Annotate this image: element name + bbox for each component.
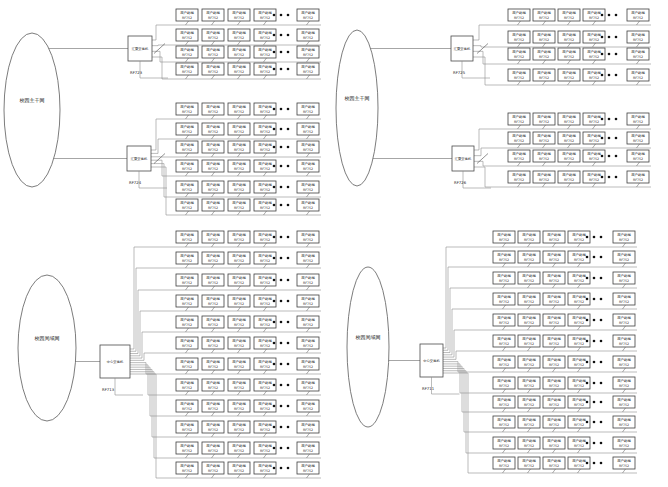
ellipsis-dot xyxy=(280,165,283,168)
ellipsis-dot xyxy=(280,34,283,37)
terminal-box-label-line1: 用户终端 xyxy=(631,173,645,177)
terminal-box-label-line2: RF752 xyxy=(619,444,629,448)
terminal-box-label-line2: RF752 xyxy=(303,281,313,285)
terminal-box-label-line1: 用户终端 xyxy=(587,50,601,54)
terminal-box-label-line2: RF752 xyxy=(303,323,313,327)
terminal-box-label-line2: RF752 xyxy=(589,178,599,182)
ellipsis-dot xyxy=(593,361,596,364)
terminal-box-label-line2: RF752 xyxy=(499,300,509,304)
diagram-svg: 用户终端RF752用户终端RF752用户终端RF752用户终端RF752用户终端… xyxy=(0,0,668,487)
ellipsis-dot xyxy=(601,36,604,39)
terminal-box-label-line2: RF752 xyxy=(234,365,244,369)
terminal-box-label-line1: 用户终端 xyxy=(301,360,315,364)
terminal-box-label-line1: 用户终端 xyxy=(206,125,220,129)
terminal-box-label-line1: 用户终端 xyxy=(258,143,272,147)
ellipsis-dot xyxy=(273,363,276,366)
terminal-box-label-line1: 用户终端 xyxy=(180,381,194,385)
ellipsis-dot xyxy=(287,467,290,470)
terminal-box-label-line2: RF752 xyxy=(564,76,574,80)
ellipsis-dot xyxy=(601,53,604,56)
terminal-box-label-line1: 用户终端 xyxy=(232,201,246,205)
terminal-box-label-line1: 用户终端 xyxy=(522,418,536,422)
terminal-box-label-line2: RF752 xyxy=(499,342,509,346)
ellipsis-dot xyxy=(586,340,589,343)
terminal-box-label-line1: 用户终端 xyxy=(497,233,511,237)
terminal-box-label-line1: 用户终端 xyxy=(206,183,220,187)
terminal-box-label-line2: RF752 xyxy=(208,238,218,242)
ellipsis-dot xyxy=(287,384,290,387)
ellipsis-dot xyxy=(287,300,290,303)
terminal-box-label-line2: RF752 xyxy=(539,157,549,161)
terminal-box-label-line2: RF752 xyxy=(182,449,192,453)
terminal-box-label-line1: 用户终端 xyxy=(232,143,246,147)
terminal-box-label-line2: RF752 xyxy=(564,139,574,143)
switch-sublabel: RF723 xyxy=(130,70,143,75)
terminal-box-label-line2: RF752 xyxy=(499,444,509,448)
terminal-box-label-line1: 用户终端 xyxy=(258,125,272,129)
terminal-box-label-line2: RF752 xyxy=(208,449,218,453)
terminal-box-label-line2: RF752 xyxy=(208,130,218,134)
terminal-box-label-line1: 用户终端 xyxy=(180,183,194,187)
terminal-box-label-line1: 用户终端 xyxy=(232,276,246,280)
terminal-box-label-line1: 用户终端 xyxy=(547,439,561,443)
terminal-box-label-line1: 用户终端 xyxy=(206,444,220,448)
terminal-box-label-line2: RF752 xyxy=(574,403,584,407)
terminal-box-label-line2: RF752 xyxy=(619,342,629,346)
terminal-box-label-line1: 用户终端 xyxy=(562,173,576,177)
terminal-box-label-line1: 用户终端 xyxy=(180,297,194,301)
terminal-box-label-line2: RF752 xyxy=(303,188,313,192)
ellipsis-dot xyxy=(280,51,283,54)
terminal-box-label-line2: RF752 xyxy=(633,139,643,143)
terminal-box-label-line2: RF752 xyxy=(524,403,534,407)
terminal-box-label-line1: 用户终端 xyxy=(232,162,246,166)
terminal-box-label-line1: 用户终端 xyxy=(497,316,511,320)
terminal-box-label-line1: 用户终端 xyxy=(301,444,315,448)
terminal-box-label-line2: RF752 xyxy=(234,188,244,192)
terminal-box-label-line1: 用户终端 xyxy=(206,105,220,109)
ellipsis-dot xyxy=(601,137,604,140)
terminal-box-label-line1: 用户终端 xyxy=(572,295,586,299)
terminal-box-label-line2: RF752 xyxy=(524,423,534,427)
ellipsis-dot xyxy=(593,277,596,280)
terminal-box-label-line1: 用户终端 xyxy=(587,134,601,138)
terminal-box-label-line2: RF752 xyxy=(234,167,244,171)
terminal-box-label-line1: 用户终端 xyxy=(631,71,645,75)
terminal-box-label-line2: RF752 xyxy=(574,384,584,388)
terminal-box-label-line1: 用户终端 xyxy=(206,201,220,205)
terminal-box-label-line2: RF752 xyxy=(303,130,313,134)
terminal-box-label-line1: 用户终端 xyxy=(258,423,272,427)
ellipsis-dot xyxy=(601,14,604,17)
terminal-box-label-line2: RF752 xyxy=(182,110,192,114)
terminal-box-label-line2: RF752 xyxy=(514,157,524,161)
terminal-box-label-line1: 用户终端 xyxy=(301,339,315,343)
terminal-box-label-line2: RF752 xyxy=(234,344,244,348)
terminal-box-label-line1: 用户终端 xyxy=(547,358,561,362)
ellipsis-dot xyxy=(287,447,290,450)
terminal-box-label-line1: 用户终端 xyxy=(180,143,194,147)
terminal-box-label-line1: 用户终端 xyxy=(572,253,586,257)
terminal-box-label-line1: 用户终端 xyxy=(587,33,601,37)
ellipsis-dot xyxy=(273,128,276,131)
terminal-box-label-line2: RF752 xyxy=(549,300,559,304)
terminal-box-label-line1: 用户终端 xyxy=(232,48,246,52)
terminal-box-label-line1: 用户终端 xyxy=(301,423,315,427)
terminal-box-label-line2: RF752 xyxy=(589,120,599,124)
ellipsis-dot xyxy=(586,361,589,364)
terminal-box-label-line1: 用户终端 xyxy=(572,418,586,422)
terminal-box-label-line2: RF752 xyxy=(303,53,313,57)
terminal-box-label-line2: RF752 xyxy=(619,423,629,427)
terminal-box-label-line2: RF752 xyxy=(303,302,313,306)
terminal-box-label-line2: RF752 xyxy=(549,444,559,448)
terminal-box-label-line1: 用户终端 xyxy=(180,125,194,129)
ellipsis-dot xyxy=(273,165,276,168)
terminal-box-label-line2: RF752 xyxy=(564,16,574,20)
terminal-box-label-line1: 用户终端 xyxy=(232,444,246,448)
switch-label: 中心交换机 xyxy=(423,358,440,363)
ellipsis-dot xyxy=(601,74,604,77)
terminal-box-label-line2: RF752 xyxy=(574,464,584,468)
terminal-box-label-line2: RF752 xyxy=(234,53,244,57)
terminal-box-label-line2: RF752 xyxy=(514,120,524,124)
terminal-box-label-line2: RF752 xyxy=(303,428,313,432)
terminal-box-label-line1: 用户终端 xyxy=(258,276,272,280)
terminal-box-label-line2: RF752 xyxy=(208,407,218,411)
ellipsis-dot xyxy=(280,405,283,408)
ellipsis-dot xyxy=(273,108,276,111)
terminal-box-label-line2: RF752 xyxy=(260,238,270,242)
terminal-box-label-line2: RF752 xyxy=(514,178,524,182)
ellipsis-dot xyxy=(280,447,283,450)
ellipsis-dot xyxy=(593,382,596,385)
ellipsis-dot xyxy=(615,155,618,158)
ellipsis-dot xyxy=(615,137,618,140)
terminal-box-label-line1: 用户终端 xyxy=(587,115,601,119)
ellipsis-dot xyxy=(273,342,276,345)
ellipsis-dot xyxy=(593,401,596,404)
terminal-box-label-line2: RF752 xyxy=(182,323,192,327)
terminal-box-label-line1: 用户终端 xyxy=(631,33,645,37)
terminal-box-label-line1: 用户终端 xyxy=(206,48,220,52)
terminal-box-label-line1: 用户终端 xyxy=(301,31,315,35)
terminal-box-label-line1: 用户终端 xyxy=(180,65,194,69)
switch-label: 汇聚交换机 xyxy=(454,47,471,51)
terminal-box-label-line1: 用户终端 xyxy=(572,337,586,341)
terminal-box-label-line1: 用户终端 xyxy=(587,173,601,177)
terminal-box-label-line2: RF752 xyxy=(208,365,218,369)
ellipsis-dot xyxy=(273,467,276,470)
network-cloud-ellipse xyxy=(347,267,389,427)
terminal-box-label-line1: 用户终端 xyxy=(562,115,576,119)
terminal-box-label-line1: 用户终端 xyxy=(512,71,526,75)
terminal-box-label-line1: 用户终端 xyxy=(537,11,551,15)
switch-sublabel: RF725 xyxy=(453,70,466,75)
terminal-box-label-line1: 用户终端 xyxy=(617,253,631,257)
terminal-box-label-line2: RF752 xyxy=(549,258,559,262)
terminal-box-label-line1: 用户终端 xyxy=(537,115,551,119)
terminal-box-label-line2: RF752 xyxy=(524,238,534,242)
ellipsis-dot xyxy=(287,342,290,345)
terminal-box-label-line1: 用户终端 xyxy=(206,65,220,69)
terminal-box-label-line2: RF752 xyxy=(589,139,599,143)
terminal-box-label-line1: 用户终端 xyxy=(232,31,246,35)
terminal-box-label-line2: RF752 xyxy=(539,76,549,80)
terminal-box-label-line2: RF752 xyxy=(260,428,270,432)
ellipsis-dot xyxy=(280,279,283,282)
terminal-box-label-line1: 用户终端 xyxy=(301,48,315,52)
terminal-box-label-line1: 用户终端 xyxy=(232,339,246,343)
terminal-box-label-line2: RF752 xyxy=(524,363,534,367)
ellipsis-dot xyxy=(287,14,290,17)
terminal-box-label-line1: 用户终端 xyxy=(301,254,315,258)
terminal-box-label-line2: RF752 xyxy=(234,469,244,473)
terminal-box-label-line2: RF752 xyxy=(633,38,643,42)
terminal-box-label-line1: 用户终端 xyxy=(206,339,220,343)
terminal-box-label-line2: RF752 xyxy=(303,206,313,210)
terminal-box-label-line1: 用户终端 xyxy=(562,11,576,15)
terminal-box-label-line1: 用户终端 xyxy=(180,254,194,258)
terminal-box-label-line2: RF752 xyxy=(234,259,244,263)
terminal-box-label-line1: 用户终端 xyxy=(572,398,586,402)
terminal-box-label-line2: RF752 xyxy=(514,16,524,20)
switch-label: 汇聚交换机 xyxy=(131,157,148,161)
ellipsis-dot xyxy=(273,34,276,37)
terminal-box-label-line1: 用户终端 xyxy=(301,233,315,237)
terminal-box-label-line2: RF752 xyxy=(574,300,584,304)
terminal-box-label-line2: RF752 xyxy=(182,188,192,192)
terminal-box-label-line2: RF752 xyxy=(260,469,270,473)
terminal-box-label-line2: RF752 xyxy=(619,363,629,367)
ellipsis-dot xyxy=(593,298,596,301)
ellipsis-dot xyxy=(608,118,611,121)
ellipsis-dot xyxy=(287,128,290,131)
ellipsis-dot xyxy=(600,236,603,239)
ellipsis-dot xyxy=(600,442,603,445)
terminal-box-label-line1: 用户终端 xyxy=(206,11,220,15)
terminal-box-label-line1: 用户终端 xyxy=(617,295,631,299)
terminal-box-label-line2: RF752 xyxy=(539,38,549,42)
terminal-box-label-line2: RF752 xyxy=(633,55,643,59)
ellipsis-dot xyxy=(287,426,290,429)
terminal-box-label-line2: RF752 xyxy=(619,321,629,325)
terminal-box-label-line2: RF752 xyxy=(260,365,270,369)
terminal-box-label-line2: RF752 xyxy=(260,130,270,134)
terminal-box-label-line1: 用户终端 xyxy=(180,276,194,280)
terminal-box-label-line1: 用户终端 xyxy=(206,318,220,322)
ellipsis-dot xyxy=(586,442,589,445)
terminal-box-label-line2: RF752 xyxy=(182,206,192,210)
terminal-box-label-line2: RF752 xyxy=(524,258,534,262)
terminal-box-label-line1: 用户终端 xyxy=(631,115,645,119)
terminal-box-label-line2: RF752 xyxy=(182,407,192,411)
terminal-box-label-line1: 用户终端 xyxy=(572,459,586,463)
terminal-box-label-line2: RF752 xyxy=(182,70,192,74)
ellipsis-dot xyxy=(600,277,603,280)
ellipsis-dot xyxy=(586,401,589,404)
terminal-box-label-line2: RF752 xyxy=(499,384,509,388)
terminal-box-label-line2: RF752 xyxy=(182,36,192,40)
terminal-box-label-line1: 用户终端 xyxy=(537,134,551,138)
terminal-box-label-line1: 用户终端 xyxy=(537,173,551,177)
terminal-box-label-line2: RF752 xyxy=(234,70,244,74)
terminal-box-label-line2: RF752 xyxy=(303,70,313,74)
terminal-box-label-line2: RF752 xyxy=(182,428,192,432)
ellipsis-dot xyxy=(608,36,611,39)
terminal-box-label-line1: 用户终端 xyxy=(617,439,631,443)
ellipsis-dot xyxy=(600,421,603,424)
ellipsis-dot xyxy=(600,319,603,322)
terminal-box-label-line1: 用户终端 xyxy=(537,71,551,75)
terminal-box-label-line2: RF752 xyxy=(260,70,270,74)
terminal-box-label-line2: RF752 xyxy=(633,120,643,124)
ellipsis-dot xyxy=(280,108,283,111)
terminal-box-label-line1: 用户终端 xyxy=(232,318,246,322)
network-cloud-ellipse xyxy=(4,33,60,187)
terminal-box-label-line2: RF752 xyxy=(208,110,218,114)
terminal-box-label-line2: RF752 xyxy=(524,300,534,304)
terminal-box-label-line2: RF752 xyxy=(539,178,549,182)
terminal-box-label-line2: RF752 xyxy=(619,258,629,262)
terminal-box-label-line1: 用户终端 xyxy=(258,162,272,166)
terminal-box-label-line2: RF752 xyxy=(208,36,218,40)
ellipsis-dot xyxy=(593,340,596,343)
terminal-box-label-line2: RF752 xyxy=(619,238,629,242)
ellipsis-dot xyxy=(615,74,618,77)
terminal-box-label-line1: 用户终端 xyxy=(512,50,526,54)
terminal-box-label-line2: RF752 xyxy=(182,469,192,473)
ellipsis-dot xyxy=(280,14,283,17)
terminal-box-label-line1: 用户终端 xyxy=(301,297,315,301)
terminal-box-label-line2: RF752 xyxy=(260,16,270,20)
ellipsis-dot xyxy=(273,68,276,71)
terminal-box-label-line1: 用户终端 xyxy=(497,459,511,463)
terminal-box-label-line2: RF752 xyxy=(549,363,559,367)
terminal-box-label-line1: 用户终端 xyxy=(631,134,645,138)
terminal-box-label-line1: 用户终端 xyxy=(232,125,246,129)
terminal-box-label-line2: RF752 xyxy=(260,407,270,411)
ellipsis-dot xyxy=(615,176,618,179)
terminal-box-label-line1: 用户终端 xyxy=(547,274,561,278)
ellipsis-dot xyxy=(615,53,618,56)
ellipsis-dot xyxy=(586,319,589,322)
terminal-box-label-line1: 用户终端 xyxy=(301,318,315,322)
terminal-box-label-line1: 用户终端 xyxy=(180,318,194,322)
terminal-box-label-line2: RF752 xyxy=(514,76,524,80)
terminal-box-label-line1: 用户终端 xyxy=(258,464,272,468)
terminal-box-label-line1: 用户终端 xyxy=(547,337,561,341)
ellipsis-dot xyxy=(600,462,603,465)
ellipsis-dot xyxy=(615,36,618,39)
terminal-box-label-line1: 用户终端 xyxy=(301,65,315,69)
ellipsis-dot xyxy=(608,137,611,140)
terminal-box-label-line1: 用户终端 xyxy=(512,134,526,138)
terminal-box-label-line2: RF752 xyxy=(564,120,574,124)
terminal-box-label-line2: RF752 xyxy=(234,238,244,242)
terminal-box-label-line2: RF752 xyxy=(303,36,313,40)
network-cloud-label: 校园局域网 xyxy=(355,334,381,341)
terminal-box-label-line1: 用户终端 xyxy=(180,423,194,427)
ellipsis-dot xyxy=(600,361,603,364)
terminal-box-label-line1: 用户终端 xyxy=(631,152,645,156)
terminal-box-label-line1: 用户终端 xyxy=(537,33,551,37)
terminal-box-label-line2: RF752 xyxy=(574,423,584,427)
ellipsis-dot xyxy=(273,384,276,387)
terminal-box-label-line2: RF752 xyxy=(564,38,574,42)
network-cloud-label: 校园主干网 xyxy=(344,95,370,102)
ellipsis-dot xyxy=(280,363,283,366)
terminal-box-label-line1: 用户终端 xyxy=(512,152,526,156)
terminal-box-label-line1: 用户终端 xyxy=(258,183,272,187)
terminal-box-label-line2: RF752 xyxy=(260,53,270,57)
terminal-box-label-line1: 用户终端 xyxy=(522,379,536,383)
terminal-box-label-line1: 用户终端 xyxy=(562,33,576,37)
terminal-box-label-line2: RF752 xyxy=(260,259,270,263)
ellipsis-dot xyxy=(273,51,276,54)
terminal-box-label-line2: RF752 xyxy=(589,38,599,42)
terminal-box-label-line2: RF752 xyxy=(182,167,192,171)
ellipsis-dot xyxy=(273,300,276,303)
terminal-box-label-line2: RF752 xyxy=(549,423,559,427)
ellipsis-dot xyxy=(593,462,596,465)
terminal-box-label-line2: RF752 xyxy=(619,464,629,468)
terminal-box-label-line2: RF752 xyxy=(260,36,270,40)
terminal-box-label-line2: RF752 xyxy=(303,469,313,473)
ellipsis-dot xyxy=(287,146,290,149)
ellipsis-dot xyxy=(593,236,596,239)
terminal-box-label-line1: 用户终端 xyxy=(206,464,220,468)
terminal-box-label-line1: 用户终端 xyxy=(206,297,220,301)
terminal-box-label-line1: 用户终端 xyxy=(232,183,246,187)
terminal-box-label-line1: 用户终端 xyxy=(232,381,246,385)
terminal-box-label-line1: 用户终端 xyxy=(206,402,220,406)
terminal-box-label-line2: RF752 xyxy=(524,384,534,388)
terminal-box-label-line1: 用户终端 xyxy=(301,143,315,147)
ellipsis-dot xyxy=(273,186,276,189)
terminal-box-label-line1: 用户终端 xyxy=(497,379,511,383)
terminal-box-label-line1: 用户终端 xyxy=(206,360,220,364)
terminal-box-label-line1: 用户终端 xyxy=(522,398,536,402)
terminal-box-label-line2: RF752 xyxy=(549,321,559,325)
ellipsis-dot xyxy=(280,384,283,387)
terminal-box-label-line2: RF752 xyxy=(234,407,244,411)
terminal-box-label-line2: RF752 xyxy=(524,342,534,346)
terminal-box-label-line1: 用户终端 xyxy=(587,11,601,15)
terminal-box-label-line2: RF752 xyxy=(303,259,313,263)
terminal-box-label-line1: 用户终端 xyxy=(258,48,272,52)
ellipsis-dot xyxy=(287,279,290,282)
ellipsis-dot xyxy=(586,236,589,239)
ellipsis-dot xyxy=(280,186,283,189)
terminal-box-label-line2: RF752 xyxy=(574,342,584,346)
terminal-box-label-line1: 用户终端 xyxy=(587,71,601,75)
terminal-box-label-line1: 用户终端 xyxy=(180,201,194,205)
terminal-box-label-line1: 用户终端 xyxy=(180,464,194,468)
terminal-box-label-line2: RF752 xyxy=(574,444,584,448)
ellipsis-dot xyxy=(601,155,604,158)
terminal-box-label-line1: 用户终端 xyxy=(258,105,272,109)
ellipsis-dot xyxy=(608,176,611,179)
terminal-box-label-line1: 用户终端 xyxy=(522,274,536,278)
terminal-box-label-line1: 用户终端 xyxy=(572,439,586,443)
switch-label: 汇聚交换机 xyxy=(455,157,472,161)
switch-sublabel: RF726 xyxy=(454,180,467,185)
terminal-box-label-line2: RF752 xyxy=(524,321,534,325)
terminal-box-label-line2: RF752 xyxy=(208,344,218,348)
terminal-box-label-line1: 用户终端 xyxy=(617,337,631,341)
ellipsis-dot xyxy=(600,382,603,385)
